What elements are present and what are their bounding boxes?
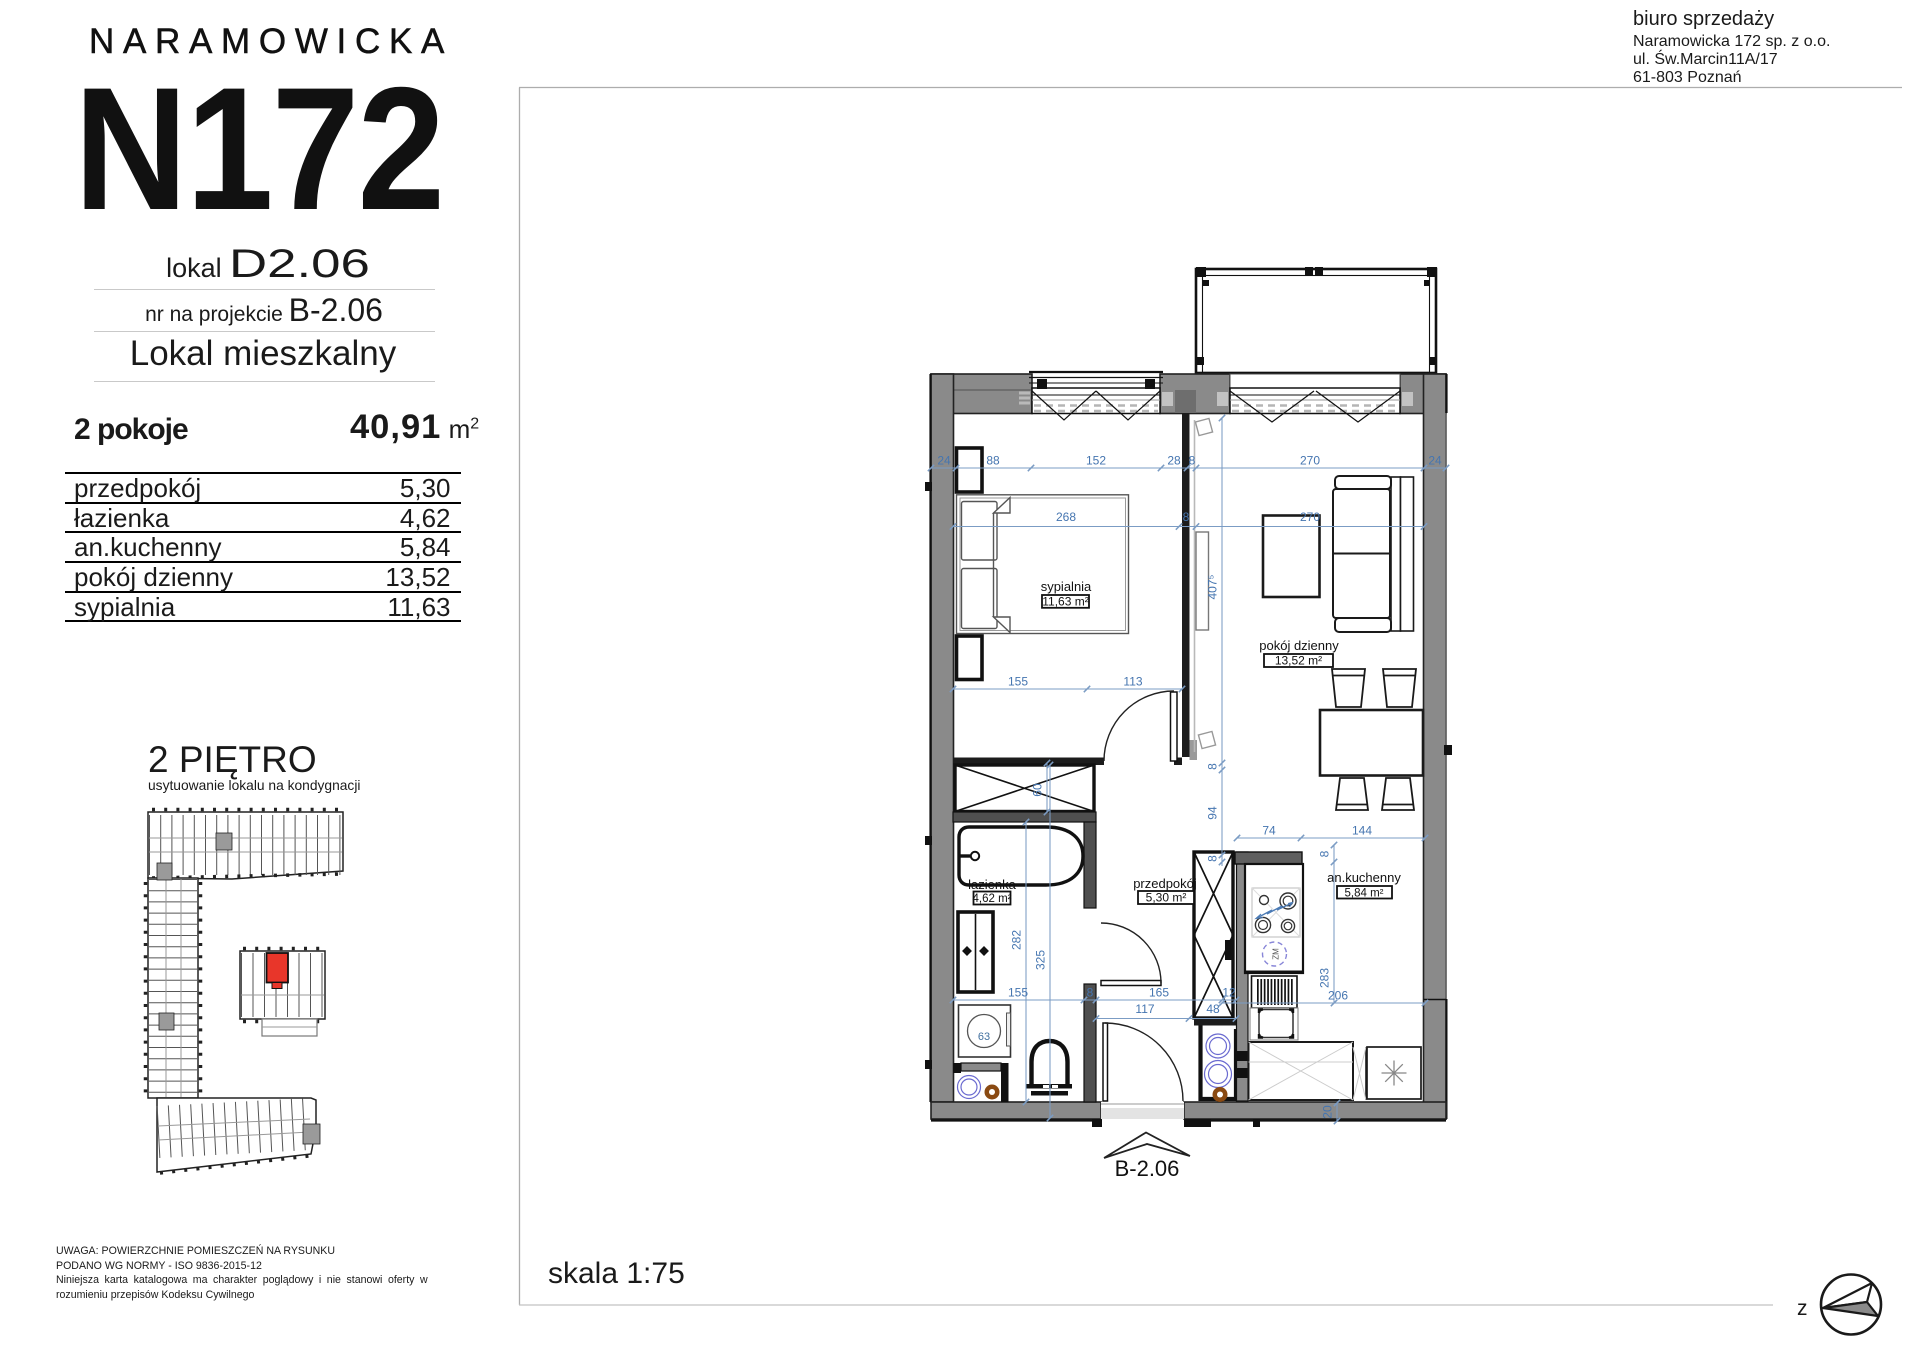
svg-text:60: 60 <box>1031 783 1045 797</box>
svg-text:8: 8 <box>1087 986 1094 1000</box>
svg-text:przedpokój: przedpokój <box>1133 876 1197 891</box>
svg-text:74: 74 <box>1262 824 1276 838</box>
svg-text:48: 48 <box>1206 1002 1220 1016</box>
svg-text:165: 165 <box>1149 986 1169 1000</box>
svg-text:an.kuchenny: an.kuchenny <box>1327 870 1401 885</box>
svg-text:94: 94 <box>1206 806 1220 820</box>
svg-text:325: 325 <box>1034 950 1048 970</box>
svg-text:155: 155 <box>1008 986 1028 1000</box>
svg-text:407⁵: 407⁵ <box>1206 574 1220 599</box>
svg-text:24: 24 <box>937 454 951 468</box>
svg-text:8: 8 <box>1206 763 1220 770</box>
svg-text:B-2.06: B-2.06 <box>1115 1156 1180 1181</box>
svg-text:270: 270 <box>1300 454 1320 468</box>
svg-text:113: 113 <box>1123 675 1142 689</box>
svg-text:88: 88 <box>986 454 1000 468</box>
svg-text:5,30 m²: 5,30 m² <box>1146 891 1187 905</box>
svg-text:20: 20 <box>1321 1105 1335 1119</box>
svg-text:8: 8 <box>1206 855 1220 862</box>
svg-text:8: 8 <box>1189 454 1196 468</box>
svg-text:282: 282 <box>1010 930 1024 950</box>
svg-text:24: 24 <box>1428 454 1442 468</box>
svg-text:12: 12 <box>1222 986 1236 1000</box>
svg-text:63: 63 <box>978 1031 990 1043</box>
svg-text:152: 152 <box>1086 454 1106 468</box>
svg-text:268: 268 <box>1056 510 1076 524</box>
svg-text:270: 270 <box>1300 510 1320 524</box>
svg-text:283: 283 <box>1318 968 1332 988</box>
svg-text:5,84 m²: 5,84 m² <box>1345 888 1384 900</box>
svg-text:8: 8 <box>1183 510 1190 524</box>
svg-text:z: z <box>1797 1297 1808 1320</box>
svg-text:117: 117 <box>1135 1002 1154 1016</box>
svg-text:28: 28 <box>1167 454 1181 468</box>
svg-text:8: 8 <box>1318 850 1332 857</box>
svg-text:11,63 m²: 11,63 m² <box>1042 595 1088 609</box>
svg-text:13,52 m²: 13,52 m² <box>1275 654 1322 668</box>
svg-text:ZM: ZM <box>1272 948 1281 960</box>
svg-text:206: 206 <box>1328 989 1348 1003</box>
svg-text:4,62 m²: 4,62 m² <box>973 893 1012 905</box>
svg-text:144: 144 <box>1352 824 1372 838</box>
svg-text:łazienka: łazienka <box>968 877 1016 892</box>
svg-text:sypialnia: sypialnia <box>1041 579 1092 594</box>
svg-text:155: 155 <box>1008 675 1028 689</box>
svg-text:pokój dzienny: pokój dzienny <box>1259 638 1339 653</box>
